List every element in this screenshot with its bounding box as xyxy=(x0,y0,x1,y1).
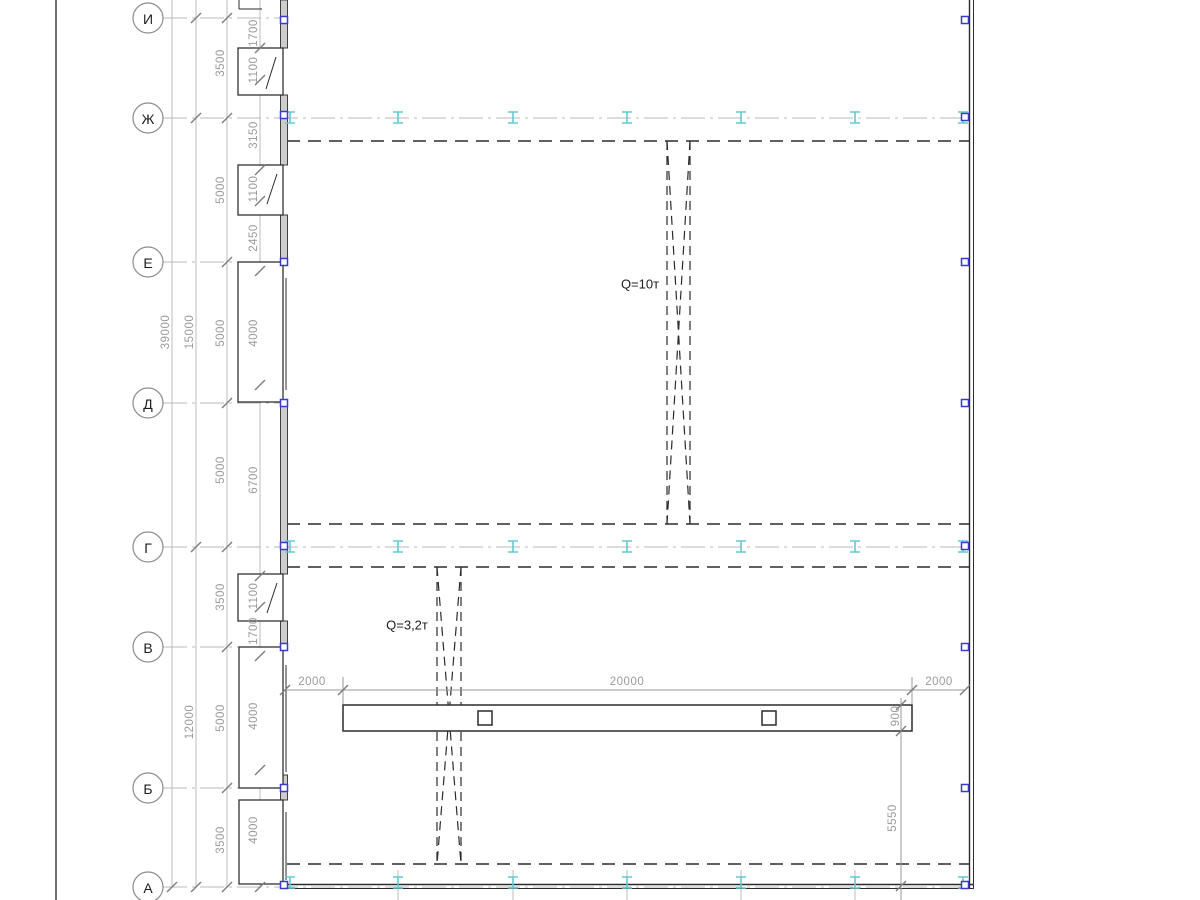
dimension-label: 1100 xyxy=(248,176,260,203)
dimension-label: 3150 xyxy=(248,121,260,149)
plan-drawing-sheet: ИЖЕДГВБА39000150001200035005000500050003… xyxy=(0,0,1200,900)
crane-rail-ibeam-marker xyxy=(850,877,860,888)
column-marker xyxy=(962,543,969,550)
dimension-label: 39000 xyxy=(160,315,172,349)
column-marker xyxy=(962,17,969,24)
column-marker xyxy=(281,644,288,651)
axis-bubble-label: Б xyxy=(143,781,152,797)
axis-bubble-label: И xyxy=(143,11,153,27)
plan-geometry xyxy=(0,0,1200,900)
dimension-label: 1100 xyxy=(248,57,260,84)
dimension-label: 3500 xyxy=(215,826,227,854)
dimension-label: 2000 xyxy=(298,676,326,688)
beam-hole xyxy=(478,711,492,725)
axis-bubble-label: В xyxy=(143,640,152,656)
column-marker xyxy=(962,785,969,792)
dimension-label: 6700 xyxy=(248,466,260,494)
crane-capacity-label: Q=3,2т xyxy=(386,618,428,633)
dimension-label: 2450 xyxy=(248,224,260,252)
axis-bubbles xyxy=(133,3,163,900)
column-marker xyxy=(281,17,288,24)
crane-rail-ibeam-marker xyxy=(393,877,403,888)
dimension-label: 20000 xyxy=(610,676,644,688)
crane-rail-ibeam-marker xyxy=(622,877,632,888)
dimension-label: 5550 xyxy=(887,804,899,832)
dimension-label: 3500 xyxy=(215,583,227,611)
dimension-label: 15000 xyxy=(184,315,196,349)
axis-bubble-label: Г xyxy=(144,540,152,556)
dimension-label: 1700 xyxy=(248,19,260,47)
beam-hole xyxy=(762,711,776,725)
dimension-label: 4000 xyxy=(248,702,260,730)
dimension-label: 5000 xyxy=(215,456,227,484)
dimension-label: 4000 xyxy=(248,816,260,844)
dimension-label: 5000 xyxy=(215,176,227,204)
column-marker xyxy=(962,114,969,121)
dimension-label: 2000 xyxy=(925,676,953,688)
dimension-label: 900 xyxy=(890,706,902,727)
dimension-label: 5000 xyxy=(215,704,227,732)
column-marker xyxy=(281,543,288,550)
column-and-rail-markers xyxy=(281,17,969,889)
column-marker xyxy=(281,259,288,266)
column-marker xyxy=(281,400,288,407)
axis-bubble-label: Е xyxy=(143,255,152,271)
column-marker xyxy=(962,644,969,651)
column-marker xyxy=(281,785,288,792)
crane-rail-ibeam-marker xyxy=(508,877,518,888)
crane-runway-dashed-lines xyxy=(287,141,969,864)
top-partial-annex xyxy=(239,0,262,9)
column-marker xyxy=(281,112,288,119)
crane-10t-symbol xyxy=(667,141,690,524)
column-marker xyxy=(281,882,288,889)
column-marker xyxy=(962,882,969,889)
dimension-label: 1700 xyxy=(248,617,260,645)
building-outline xyxy=(283,0,974,889)
axis-bubble-label: А xyxy=(143,880,152,896)
axis-bubble-label: Д xyxy=(143,396,152,412)
crane-rail-ibeam-marker xyxy=(736,877,746,888)
column-marker xyxy=(962,400,969,407)
column-marker xyxy=(962,259,969,266)
dimension-label: 1100 xyxy=(248,583,260,610)
crane-capacity-label: Q=10т xyxy=(621,277,659,292)
monorail-beam xyxy=(343,705,912,731)
axis-bubble-label: Ж xyxy=(142,111,155,127)
dimension-label: 5000 xyxy=(215,319,227,347)
dimension-label: 3500 xyxy=(215,49,227,77)
dimension-label: 4000 xyxy=(248,319,260,347)
dimension-label: 12000 xyxy=(184,705,196,739)
